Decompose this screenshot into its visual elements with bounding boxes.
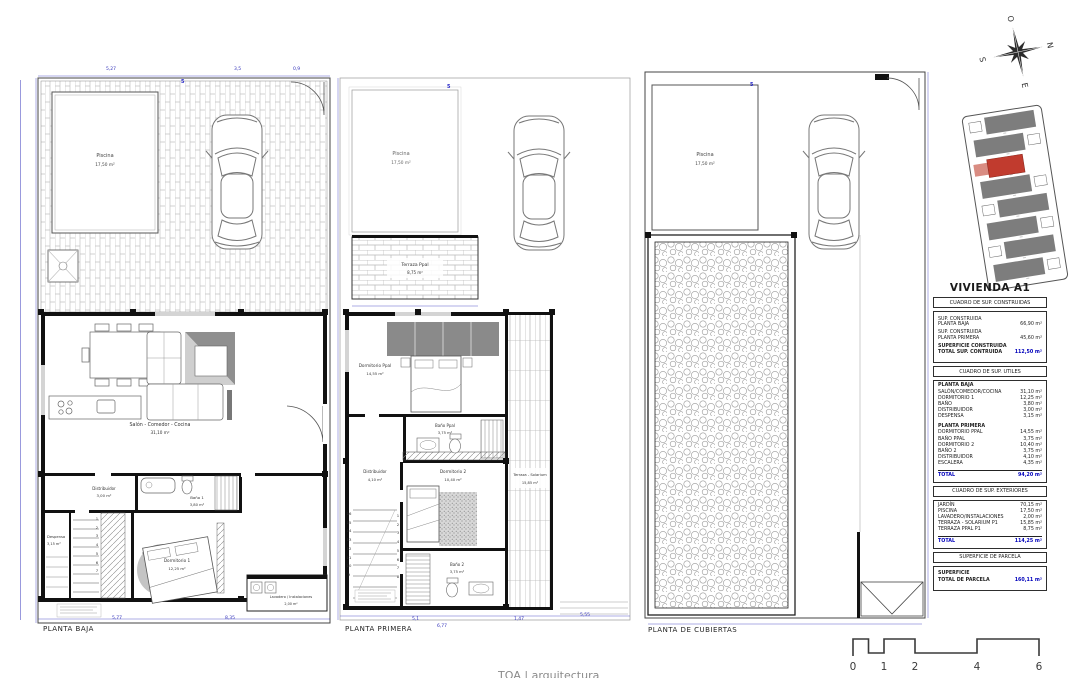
dorm2-area: 10,40 m²	[444, 477, 462, 482]
dorm2-label: Dormitorio 2	[440, 469, 467, 474]
pool-area: 17,50 m²	[95, 162, 115, 168]
row-value: 45,60 m²	[1020, 336, 1042, 342]
dim-label: 5,55	[580, 613, 590, 618]
studio-logo-text: TQA | arquitectura	[498, 669, 599, 678]
site-plan-locator	[955, 98, 1073, 296]
terraza-label: Terraza Ppal	[400, 262, 428, 268]
rug	[439, 492, 477, 546]
header-construidas: CUADRO DE SUP. CONSTRUIDAS	[933, 297, 1047, 308]
pool-label: Piscina	[696, 152, 713, 158]
table-row: SUP. CONSTRUIDAPLANTA BAJA 66,90 m²	[938, 317, 1042, 328]
comp-north: N	[1045, 41, 1055, 49]
table-row-total: TOTAL114,25 m²	[938, 539, 1042, 545]
row-label: SUP. CONSTRUIDAPLANTA BAJA	[938, 317, 982, 328]
pool-area: 17,50 m²	[695, 161, 715, 167]
laundry: Lavadero / Instalaciones 2,00 m²	[247, 575, 327, 611]
drawing-sheet: Piscina 17,50 m²	[0, 0, 1080, 678]
solarium-area: 15,85 m²	[522, 481, 539, 485]
bano1-label: Baño 1	[190, 495, 204, 500]
dim-label: 5,77	[112, 616, 122, 621]
table-row: ESCALERA4,35 m²	[938, 461, 1042, 467]
plan1-title: PLANTA BAJA	[43, 625, 94, 633]
car-icon	[508, 116, 570, 250]
construidas-body: SUP. CONSTRUIDAPLANTA BAJA 66,90 m² SUP.…	[933, 311, 1047, 363]
dim-label: 1,47	[514, 617, 524, 622]
header-parcela: SUPERFICIE DE PARCELA	[933, 552, 1047, 563]
roof-drain	[861, 582, 923, 616]
scale-tick: 2	[912, 661, 919, 673]
pool: Piscina 17,50 m²	[652, 85, 758, 230]
scale-tick: 0	[850, 661, 857, 673]
car-icon	[206, 115, 268, 249]
row-value: 160,11 m²	[1015, 578, 1042, 584]
parcela-body: SUPERFICIETOTAL DE PARCELA 160,11 m²	[933, 566, 1047, 591]
comp-west: O	[1005, 15, 1015, 23]
stair-numbers: 1 2 3 4 5 6 7	[92, 515, 102, 576]
side-wall	[857, 532, 860, 618]
note-block	[57, 604, 101, 617]
table-row-total: SUPERFICIE CONSTRUIDATOTAL SUP. CONTRUID…	[938, 344, 1042, 357]
solarium: Terraza - Solarium 15,85 m²	[508, 312, 553, 610]
row-label: SUP. CONSTRUIDAPLANTA PRIMERA	[938, 330, 982, 341]
stair-numbers-right: 1 2 3 4 5 6 7 8	[393, 512, 403, 582]
dim-label: 5,1	[412, 617, 419, 622]
dim-label: 3,5	[234, 67, 241, 72]
terraza-ppal: Terraza Ppal 8,75 m²	[352, 235, 478, 299]
comp-south: S	[977, 56, 987, 63]
note-block	[355, 590, 395, 602]
bano-ppal-label: Baño Ppal	[435, 423, 455, 428]
wall-code: 5	[181, 79, 184, 85]
scale-tick: 1	[881, 661, 888, 673]
salon-area: 31,10 m²	[150, 430, 169, 435]
outdoor-shower	[48, 250, 78, 282]
wall-code: 5	[750, 82, 753, 88]
dorm-ppal-area: 14,55 m²	[366, 371, 384, 376]
row-label: SUPERFICIETOTAL DE PARCELA	[938, 571, 990, 584]
wardrobe	[217, 523, 224, 593]
wall-code: 5	[447, 84, 450, 90]
plan2-title: PLANTA PRIMERA	[345, 625, 412, 633]
dorm-ppal-label: Dormitorio Ppal	[359, 363, 392, 368]
kitchen-island	[49, 396, 141, 419]
dimension-line-vertical	[20, 80, 21, 620]
row-value: 66,90 m²	[1020, 322, 1042, 328]
distribuidor-area: 3,00 m²	[97, 493, 112, 498]
tv-unit	[227, 390, 232, 420]
floorplan-cubiertas: Piscina 17,50 m² PLANTA DE CUBIERTAS	[635, 64, 935, 644]
floorplan-planta-primera: Piscina 17,50 m² Terraza Ppal 8,75 m²	[335, 70, 635, 636]
terraza-area: 8,75 m²	[407, 270, 423, 275]
despensa-label: Despensa	[47, 535, 65, 539]
row-label: SUPERFICIE CONSTRUIDATOTAL SUP. CONTRUID…	[938, 344, 1007, 357]
area-summary-panel: VIVIENDA A1 CUADRO DE SUP. CONSTRUIDAS S…	[933, 282, 1047, 591]
distribuidor-label: Distribuidor	[363, 469, 387, 474]
distribuidor-area: 4,10 m²	[368, 478, 383, 482]
bano2-area: 3,75 m²	[450, 570, 465, 574]
compass-rose: N E S O	[968, 6, 1068, 98]
floorplan-planta-baja: Piscina 17,50 m²	[35, 70, 335, 636]
table-row: SUP. CONSTRUIDAPLANTA PRIMERA 45,60 m²	[938, 330, 1042, 341]
table-row: TERRAZA PPAL P18,75 m²	[938, 527, 1042, 533]
header-utiles: CUADRO DE SUP. UTILES	[933, 366, 1047, 377]
lavadero-label: Lavadero / Instalaciones	[270, 595, 313, 599]
dorm1-area: 12,25 m²	[168, 566, 186, 571]
car-icon	[803, 115, 865, 249]
dim-label: 6,77	[437, 624, 447, 629]
utiles-body: PLANTA BAJA SALÓN/COMEDOR/COCINA31,10 m²…	[933, 380, 1047, 482]
pool: Piscina 17,50 m²	[52, 92, 158, 233]
solarium-label: Terraza - Solarium	[512, 473, 547, 477]
salon-label: Salón - Comedor - Cocina	[130, 421, 191, 428]
bano-ppal-area: 3,75 m²	[438, 431, 453, 435]
stair-numbers-left: 16 15 14 13 12 11 10 9	[344, 510, 354, 580]
scale-bar: 0 1 2 4 6	[848, 623, 1058, 675]
bano1-area: 3,80 m²	[190, 503, 205, 507]
dorm1-label: Dormitorio 1	[164, 558, 191, 563]
roof	[648, 235, 795, 615]
pool-label: Piscina	[392, 151, 409, 157]
panel-title: VIVIENDA A1	[933, 282, 1047, 294]
bano2-label: Baño 2	[450, 562, 464, 567]
gate-wall	[875, 74, 889, 80]
plan3-title: PLANTA DE CUBIERTAS	[648, 626, 737, 634]
distribuidor-label: Distribuidor	[92, 486, 116, 491]
table-row-total: TOTAL94,20 m²	[938, 473, 1042, 479]
despensa-area: 3,15 m²	[47, 542, 61, 546]
row-value: 112,50 m²	[1015, 350, 1042, 356]
scale-tick: 6	[1036, 661, 1043, 673]
lavadero-area: 2,00 m²	[284, 602, 298, 606]
dim-label: 8,35	[225, 616, 235, 621]
pool-area: 17,50 m²	[391, 160, 411, 166]
staircase-upper	[185, 332, 235, 385]
scale-tick: 4	[974, 661, 981, 673]
exteriores-body: JARDÍN70,15 m² PISCINA17,50 m² LAVADERO/…	[933, 500, 1047, 549]
dim-label: 0,9	[293, 67, 300, 72]
dim-label: 5,27	[106, 67, 116, 72]
header-exteriores: CUADRO DE SUP. EXTERIORES	[933, 486, 1047, 497]
table-row-total: SUPERFICIETOTAL DE PARCELA 160,11 m²	[938, 571, 1042, 584]
comp-east: E	[1020, 82, 1030, 89]
pool-label: Piscina	[96, 153, 113, 159]
